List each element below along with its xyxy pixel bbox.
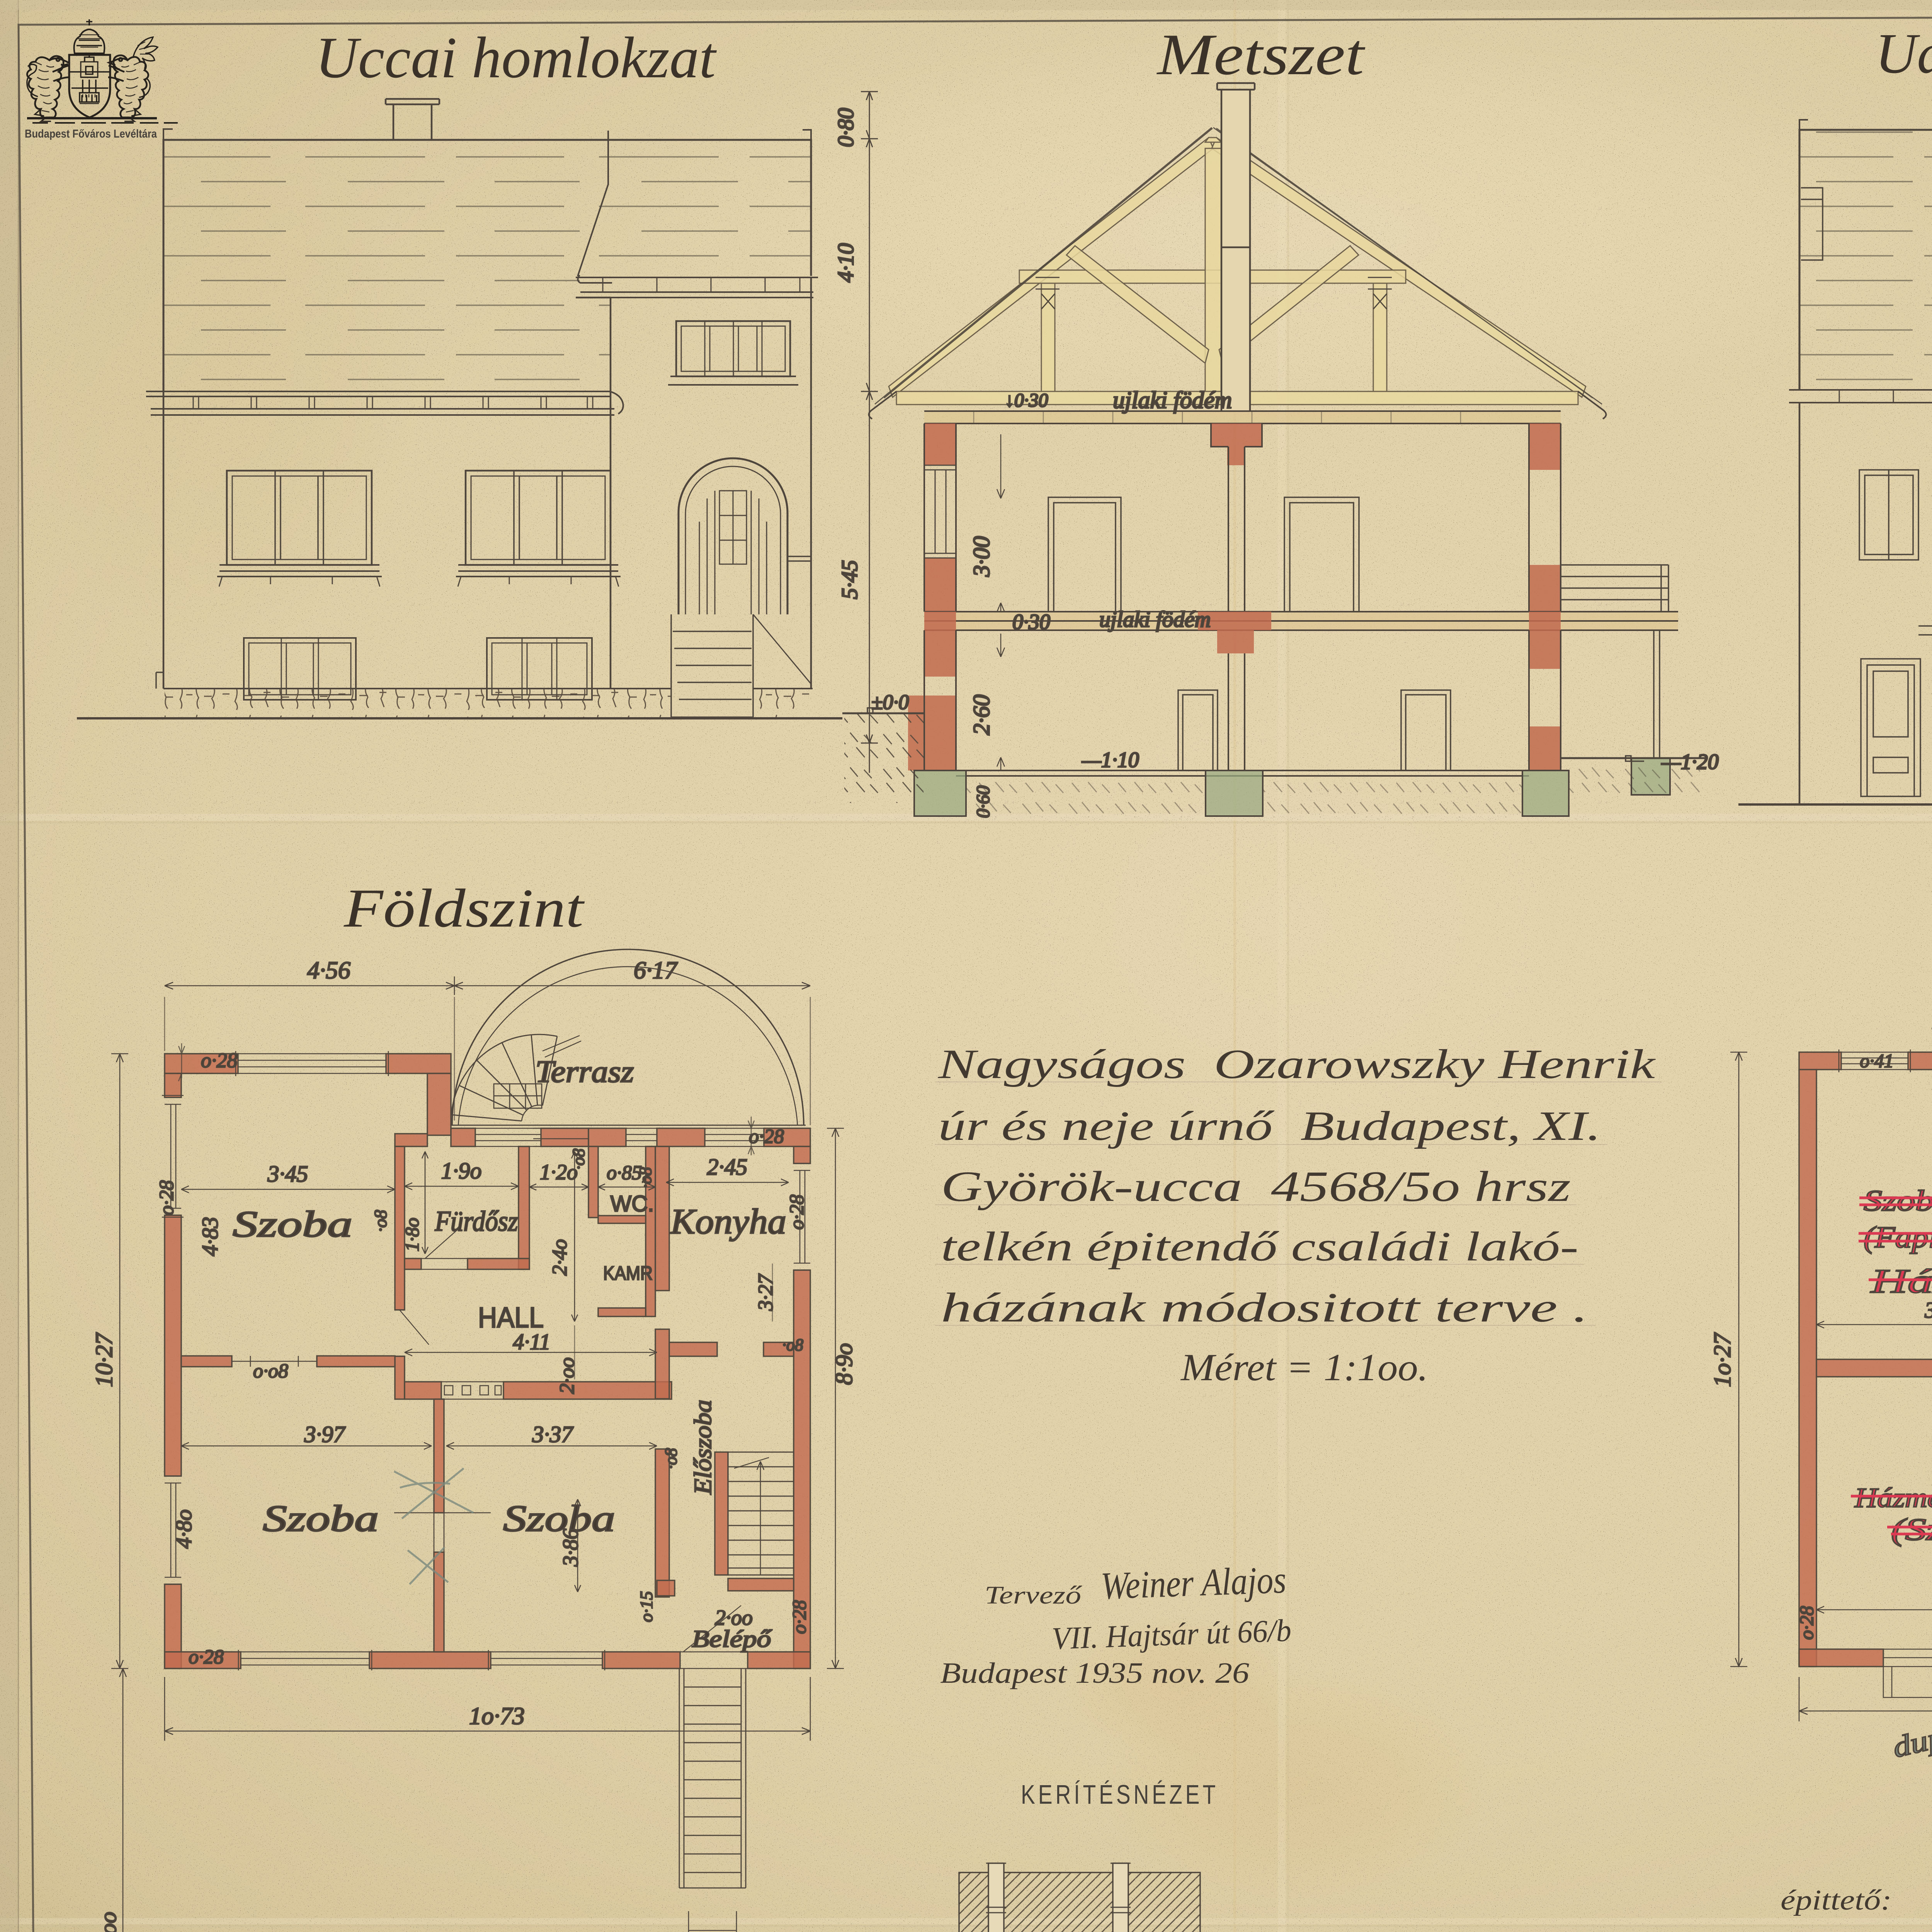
svg-text:—1·20: —1·20 — [1661, 750, 1719, 774]
svg-text:4·83: 4·83 — [197, 1217, 223, 1256]
svg-text:o·28: o·28 — [156, 1180, 178, 1216]
svg-text:Méret = 1:1oo.: Méret = 1:1oo. — [1180, 1346, 1428, 1389]
svg-text:·o8: ·o8 — [636, 1167, 655, 1189]
svg-text:o·28: o·28 — [1796, 1606, 1817, 1640]
svg-text:Szoba: Szoba — [263, 1498, 379, 1539]
svg-text:Weiner Alajos: Weiner Alajos — [1100, 1558, 1287, 1607]
svg-text:2·4o: 2·4o — [548, 1239, 571, 1276]
svg-text:Györök-ucca 4568/5o hrsz: Györök-ucca 4568/5o hrsz — [941, 1163, 1571, 1211]
svg-text:Konyha: Konyha — [670, 1202, 786, 1241]
svg-text:6·17: 6·17 — [634, 956, 678, 984]
svg-text:0·30: 0·30 — [1012, 610, 1050, 634]
svg-text:o·o8: o·o8 — [253, 1360, 288, 1382]
svg-text:·o8: ·o8 — [569, 1149, 588, 1170]
svg-text:Udvari homlokzat: Udvari homlokzat — [1875, 22, 1932, 85]
svg-text:o·28: o·28 — [786, 1195, 808, 1230]
svg-text:o·28: o·28 — [201, 1049, 238, 1072]
svg-text:Metszet: Metszet — [1156, 22, 1366, 87]
svg-text:Nagyságos Ozarowszky Henrik: Nagyságos Ozarowszky Henrik — [938, 1041, 1656, 1087]
svg-text:4·11: 4·11 — [513, 1329, 550, 1354]
svg-text:3·37: 3·37 — [532, 1422, 574, 1447]
svg-text:Uccai homlokzat: Uccai homlokzat — [315, 25, 717, 90]
svg-text:3·8o: 3·8o — [1924, 1298, 1932, 1323]
svg-text:—1·10: —1·10 — [1082, 748, 1139, 772]
svg-text:4·56: 4·56 — [307, 956, 350, 984]
svg-text:0·80: 0·80 — [833, 108, 858, 147]
svg-text:2·oo: 2·oo — [555, 1357, 578, 1394]
svg-text:1o·27: 1o·27 — [1709, 1332, 1736, 1387]
svg-text:Budapest Főváros Levéltára: Budapest Főváros Levéltára — [25, 128, 157, 140]
svg-text:o·28: o·28 — [189, 1646, 224, 1668]
svg-text:(Szénpince): (Szénpince) — [1891, 1513, 1932, 1547]
svg-text:1·8o: 1·8o — [401, 1218, 423, 1252]
svg-text:(Fapince): (Fapince) — [1864, 1220, 1932, 1254]
svg-text:épittető:: épittető: — [1781, 1884, 1892, 1916]
svg-text:Házmester ,: Házmester , — [1871, 1263, 1932, 1300]
svg-text:10·27: 10·27 — [91, 1332, 117, 1387]
svg-text:telkén épitendő családi lakó-: telkén épitendő családi lakó- — [941, 1224, 1578, 1270]
svg-text:1·9o: 1·9o — [441, 1158, 482, 1184]
svg-text:o·28: o·28 — [788, 1600, 810, 1634]
svg-text:Fürdősz: Fürdősz — [435, 1206, 518, 1237]
svg-text:HALL: HALL — [478, 1301, 544, 1333]
svg-text:3·45: 3·45 — [267, 1161, 308, 1187]
svg-text:3·27: 3·27 — [754, 1274, 777, 1311]
svg-text:Földszint: Földszint — [344, 878, 585, 939]
svg-text:Házmester szoba: Házmester szoba — [1854, 1482, 1932, 1513]
svg-text:Terrasz: Terrasz — [536, 1055, 634, 1089]
svg-text:2·60: 2·60 — [969, 695, 994, 735]
svg-text:Előszoba: Előszoba — [689, 1400, 716, 1495]
svg-text:Szoba: Szoba — [233, 1203, 352, 1245]
svg-text:±0·0: ±0·0 — [871, 690, 909, 714]
svg-text:KAMR: KAMR — [603, 1262, 653, 1284]
svg-text:Tervező: Tervező — [985, 1581, 1083, 1609]
svg-text:8·9o: 8·9o — [831, 1343, 857, 1385]
svg-text:úr és neje úrnő Budapest, XI.: úr és neje úrnő Budapest, XI. — [938, 1103, 1601, 1149]
svg-text:3·97: 3·97 — [304, 1422, 346, 1447]
svg-text:2·45: 2·45 — [707, 1154, 748, 1180]
svg-text:5·45: 5·45 — [837, 560, 862, 599]
svg-text:3·00: 3·00 — [969, 536, 994, 577]
svg-text:ujlaki födém: ujlaki födém — [1113, 387, 1232, 413]
svg-text:4·10: 4·10 — [833, 243, 858, 282]
svg-text:Budapest 1935 nov. 26: Budapest 1935 nov. 26 — [940, 1657, 1249, 1689]
svg-text:o·41: o·41 — [1860, 1050, 1894, 1071]
svg-text:2·oo: 2·oo — [715, 1606, 753, 1630]
svg-text:6·oo: 6·oo — [95, 1912, 121, 1932]
svg-text:WC.: WC. — [611, 1191, 654, 1216]
svg-text:Belépő: Belépő — [692, 1626, 773, 1652]
svg-text:Szoba: Szoba — [1864, 1185, 1932, 1217]
svg-text:KERÍTÉSNÉZET: KERÍTÉSNÉZET — [1021, 1779, 1219, 1810]
svg-text:házának módositott terve .: házának módositott terve . — [941, 1285, 1588, 1331]
svg-text:4·8o: 4·8o — [171, 1509, 196, 1549]
svg-text:o·28: o·28 — [749, 1126, 784, 1148]
svg-text:·o8: ·o8 — [371, 1210, 390, 1232]
svg-text:o·15: o·15 — [636, 1591, 656, 1622]
svg-text:·o8: ·o8 — [782, 1335, 803, 1354]
svg-text:ujlaki födém: ujlaki födém — [1099, 607, 1211, 632]
svg-text:↓0·30: ↓0·30 — [1005, 389, 1048, 411]
svg-text:0·60: 0·60 — [973, 786, 993, 818]
svg-text:1o·73: 1o·73 — [469, 1702, 525, 1730]
svg-text:·o8: ·o8 — [662, 1448, 680, 1469]
svg-text:3·86: 3·86 — [559, 1529, 583, 1567]
